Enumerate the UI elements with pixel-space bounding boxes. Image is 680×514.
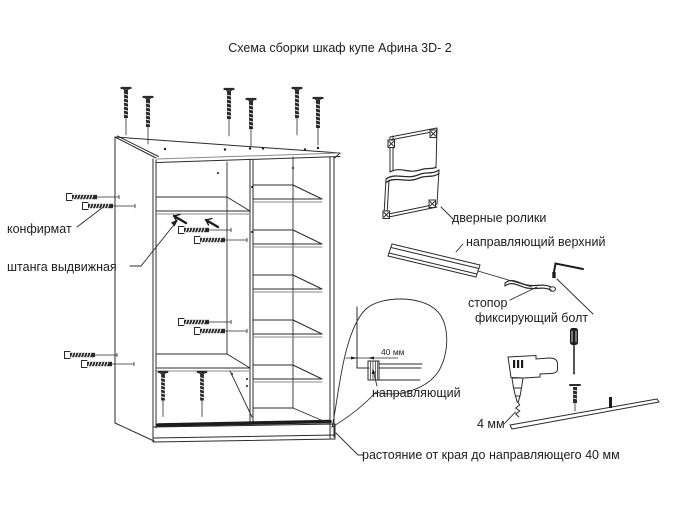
door-panels	[383, 128, 453, 219]
interior-confirmat-screws	[159, 227, 247, 417]
screwdriver	[570, 328, 578, 374]
drill-bit	[516, 402, 520, 417]
shelves-right-column	[253, 185, 322, 382]
upper-rail-leader	[456, 244, 463, 252]
label-napravlyayushchiy: направляющий	[372, 386, 461, 400]
page-title: Схема сборки шкаф купе Афина 3D- 2	[0, 41, 680, 55]
driven-screw-mark	[609, 397, 612, 408]
label-dvernye-roliki: дверные ролики	[452, 211, 546, 225]
label-detail-dimension: 40 мм	[381, 348, 405, 357]
label-shtanga-vydvizhnaya: штанга выдвижная	[7, 260, 117, 274]
label-napravlyayushchiy-verkhniy: направляющий верхний	[466, 235, 605, 249]
konfirmat-leader	[77, 208, 102, 227]
assembly-scheme-page: Схема сборки шкаф купе Афина 3D- 2 конфи…	[0, 0, 680, 514]
rod-bracket-clips	[174, 215, 218, 228]
side-confirmat-screws	[65, 194, 136, 368]
label-drill-bit-size: 4 мм	[477, 417, 505, 431]
top-confirmat-screws	[122, 88, 323, 146]
edge-distance-leader	[336, 433, 364, 455]
detail-balloon	[332, 299, 447, 427]
stopper-assembly	[505, 264, 593, 315]
lower-guide-rail	[510, 397, 659, 429]
stopper-leader	[510, 287, 537, 300]
label-edge-distance-note: растояние от края до направляющего 40 мм	[362, 448, 620, 462]
screw-hole-dots	[164, 147, 319, 387]
rail-screw	[570, 385, 580, 411]
drill-bit-leader	[504, 412, 516, 424]
fixing-bolt-leader	[557, 279, 593, 314]
label-konfirmat: конфирмат	[7, 222, 72, 236]
hex-key	[554, 264, 583, 273]
assembly-diagram	[0, 0, 680, 514]
label-fiksiruyushchiy-bolt: фиксирующий болт	[475, 311, 588, 325]
label-stopor: стопор	[468, 296, 507, 310]
drill	[504, 356, 558, 425]
